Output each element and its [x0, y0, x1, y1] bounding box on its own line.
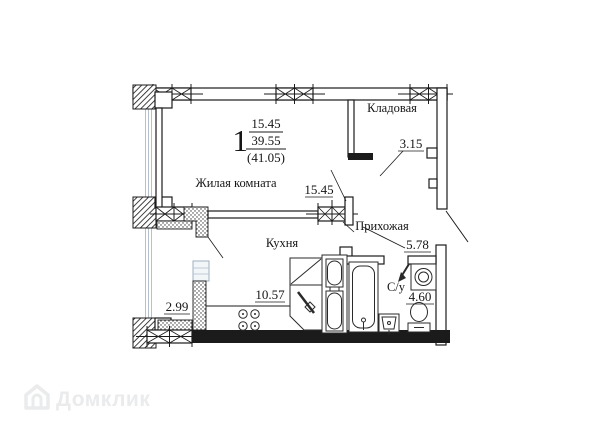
living-area-value: 15.45 — [251, 116, 280, 131]
toilet-icon — [408, 303, 430, 333]
kitchen-area: 10.57 — [255, 287, 285, 302]
balcony-door — [193, 261, 209, 281]
storage-area: 3.15 — [400, 136, 423, 151]
plumbing-riser-icon — [322, 255, 347, 333]
right-wall — [427, 88, 447, 345]
kitchen-sink-icon — [290, 258, 322, 330]
balcony-area: 2.99 — [166, 299, 189, 314]
kitchen-balcony-wall — [193, 281, 206, 330]
watermark-brand: Домклик — [56, 388, 150, 411]
window-icon — [264, 84, 325, 104]
bathroom-area: 4.60 — [409, 289, 432, 304]
living-room-bottom-wall — [208, 211, 318, 218]
domclick-house-icon — [26, 386, 48, 408]
balcony-parapet-wall — [157, 221, 192, 229]
bottom-wall — [136, 320, 450, 347]
bathtub-icon — [349, 262, 378, 332]
area-with-balcony-value: (41.05) — [247, 150, 285, 165]
leader-lines — [208, 151, 405, 258]
washbasin-icon — [379, 314, 399, 335]
floor-plan: 1 15.45 39.55 (41.05) Жилая комната 15.4… — [0, 0, 600, 426]
washing-machine-icon — [411, 264, 436, 290]
total-area-value: 39.55 — [251, 133, 280, 148]
bathroom-label: С/у — [387, 280, 406, 294]
hallway-wall-end — [345, 197, 353, 225]
floor-plan-image: 1 15.45 39.55 (41.05) Жилая комната 15.4… — [0, 0, 600, 426]
hallway-label: Прихожая — [355, 219, 409, 233]
storage-label: Кладовая — [367, 101, 417, 115]
living-room-left-wall — [156, 108, 162, 208]
stove-icon — [239, 310, 259, 330]
watermark: Домклик — [26, 386, 150, 411]
entrance-door-swing-icon — [446, 211, 468, 242]
rooms-count: 1 — [233, 123, 249, 158]
kitchen-label: Кухня — [266, 236, 299, 250]
living-room-area: 15.45 — [304, 182, 333, 197]
living-room-label: Жилая комната — [196, 176, 277, 190]
hallway-area: 5.78 — [406, 237, 429, 252]
apartment-summary: 1 15.45 39.55 (41.05) — [233, 116, 287, 165]
